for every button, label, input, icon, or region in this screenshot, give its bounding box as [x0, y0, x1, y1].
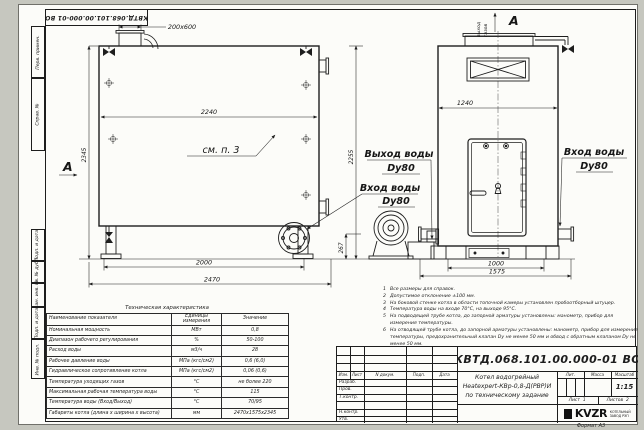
dim-body-length: 2240: [201, 108, 217, 116]
tb-row-razrab: Разраб.: [337, 379, 366, 387]
spec-row: Рабочее давление водыМПа (кгс/см2)0,6 (6…: [47, 356, 289, 366]
boiler-front-view: [419, 31, 575, 259]
view-a-marker-left: А: [62, 159, 73, 174]
spec-row: Номинальная мощностьМВт0,8: [47, 325, 289, 335]
technical-notes: 1Все размеры для справок. 2Допустимое от…: [381, 287, 639, 355]
tb-col-ndoc: N докум.: [364, 371, 406, 379]
kvzr-logo-text: KVZR: [575, 407, 607, 420]
dim-front-height: 2255: [349, 149, 355, 164]
see-note-callout: см. п. 3: [202, 145, 239, 156]
view-a-marker-top: А: [508, 13, 519, 28]
spec-row: Диапазон рабочего регулирования%50-100: [47, 335, 289, 345]
tb-col-podp: Подп.: [406, 371, 432, 379]
drawing-sheet: Перв. примен. Справ. № Подп. и дата Инв.…: [18, 4, 638, 425]
gas-valve-icon: [562, 45, 574, 53]
technical-characteristics: Техническая характеристика Наименование …: [46, 305, 288, 419]
blower-fan: [369, 211, 439, 259]
dim-front-legs-span: 1000: [488, 260, 504, 268]
tb-row-tkontr: Т.контр.: [337, 394, 366, 402]
kvzr-logo-icon: [564, 409, 572, 419]
product-name-line2: Heatexpert-КВр-0,8-Д(РВР)И: [463, 383, 552, 392]
spec-row: Габариты котла (длина х ширина х высота)…: [47, 408, 289, 418]
gas-outlet-label-2: газов: [484, 24, 489, 37]
boiler-base: [431, 246, 559, 259]
spec-row: Температура уходящих газов°Сне более 220: [47, 377, 289, 387]
water-inlet-right-label: Вход воды: [564, 147, 625, 158]
product-name-line1: Котел водогрейный: [463, 374, 552, 383]
gas-outlet-label-1: выход: [477, 22, 482, 37]
format-note: Формат А3: [549, 423, 633, 429]
tb-row-utv: Утв.: [337, 416, 366, 423]
tb-col-list: Лист: [350, 371, 364, 379]
logo-subline2: ЗАВОД РЭП: [610, 414, 631, 418]
note-item: 1Все размеры для справок.: [381, 287, 639, 294]
water-outlet-label: Выход воды: [365, 149, 434, 160]
note-item: 5На подводящей трубе котла, до запорной …: [381, 314, 639, 328]
dimension-lines: [89, 25, 571, 288]
water-outlet-dn: Dу80: [387, 163, 415, 174]
spec-row: Расход водым3/ч28: [47, 346, 289, 356]
dim-overall-width: 1575: [489, 268, 505, 276]
tb-col-izm: Изм.: [337, 371, 350, 379]
sheets-cell: Листов2: [598, 396, 639, 404]
tb-massa-label: Масса: [584, 371, 611, 378]
dim-overall-length: 2470: [204, 276, 220, 284]
scanned-boiler-drawing: { "watermark": "kotel-kvr.ru", "stamp_to…: [0, 0, 644, 430]
tb-col-data: Дата: [432, 371, 457, 379]
tb-row-nkontr: Н.контр.: [337, 409, 366, 417]
dim-chimney: 200х600: [168, 23, 196, 31]
tb-row-prov: Пров.: [337, 386, 366, 394]
tb-row-empty: [337, 401, 366, 409]
document-number: КВТД.068.101.00.000-01 ВО: [457, 347, 638, 371]
water-inlet-flange: [279, 223, 310, 254]
furnace-door: [468, 139, 526, 236]
spec-row: Гидравлическое сопротивление котлаМПа (к…: [47, 367, 289, 377]
dim-burner-axis: 267: [339, 242, 345, 253]
product-name-line3: по техническому задание: [463, 392, 552, 401]
title-block: Изм. Лист N докум. Подп. Дата Разраб. Пр…: [336, 346, 637, 422]
dim-legs-span: 2000: [196, 259, 212, 267]
callouts: [59, 13, 627, 239]
product-name: Котел водогрейный Heatexpert-КВр-0,8-Д(Р…: [457, 371, 557, 404]
water-inlet-right-dn: Dу80: [580, 161, 608, 172]
air-valve-icon: [103, 48, 312, 56]
dim-height-total: 2345: [82, 147, 88, 162]
water-inlet-dn: Dу80: [382, 196, 410, 207]
sheet-cell: Лист1: [557, 396, 598, 404]
water-inlet-label: Вход воды: [360, 183, 421, 194]
scale-value: 1:15: [611, 378, 638, 396]
lifting-lug-marks: [104, 78, 311, 200]
tb-masshtab-label: Масштаб: [611, 371, 638, 378]
spec-table-title: Техническая характеристика: [46, 305, 288, 311]
tb-lit-label: Лит.: [557, 371, 584, 378]
spec-row: Температура воды (Вход/Выход)°С70/95: [47, 398, 289, 408]
spec-row: Максимальная рабочая температура воды°С1…: [47, 387, 289, 397]
manufacturer-logo: KVZR КОТЕЛЬНЫЙ ЗАВОД РЭП: [557, 404, 638, 423]
spec-table: Наименование показателя Единицы измерени…: [46, 313, 289, 420]
dim-front-width: 1240: [457, 99, 473, 107]
note-item: 2Допустимое отклонение ±100 мм.: [381, 294, 639, 301]
logo-subline1: КОТЕЛЬНЫЙ: [610, 410, 631, 414]
spec-header-row: Наименование показателя Единицы измерени…: [47, 313, 289, 325]
